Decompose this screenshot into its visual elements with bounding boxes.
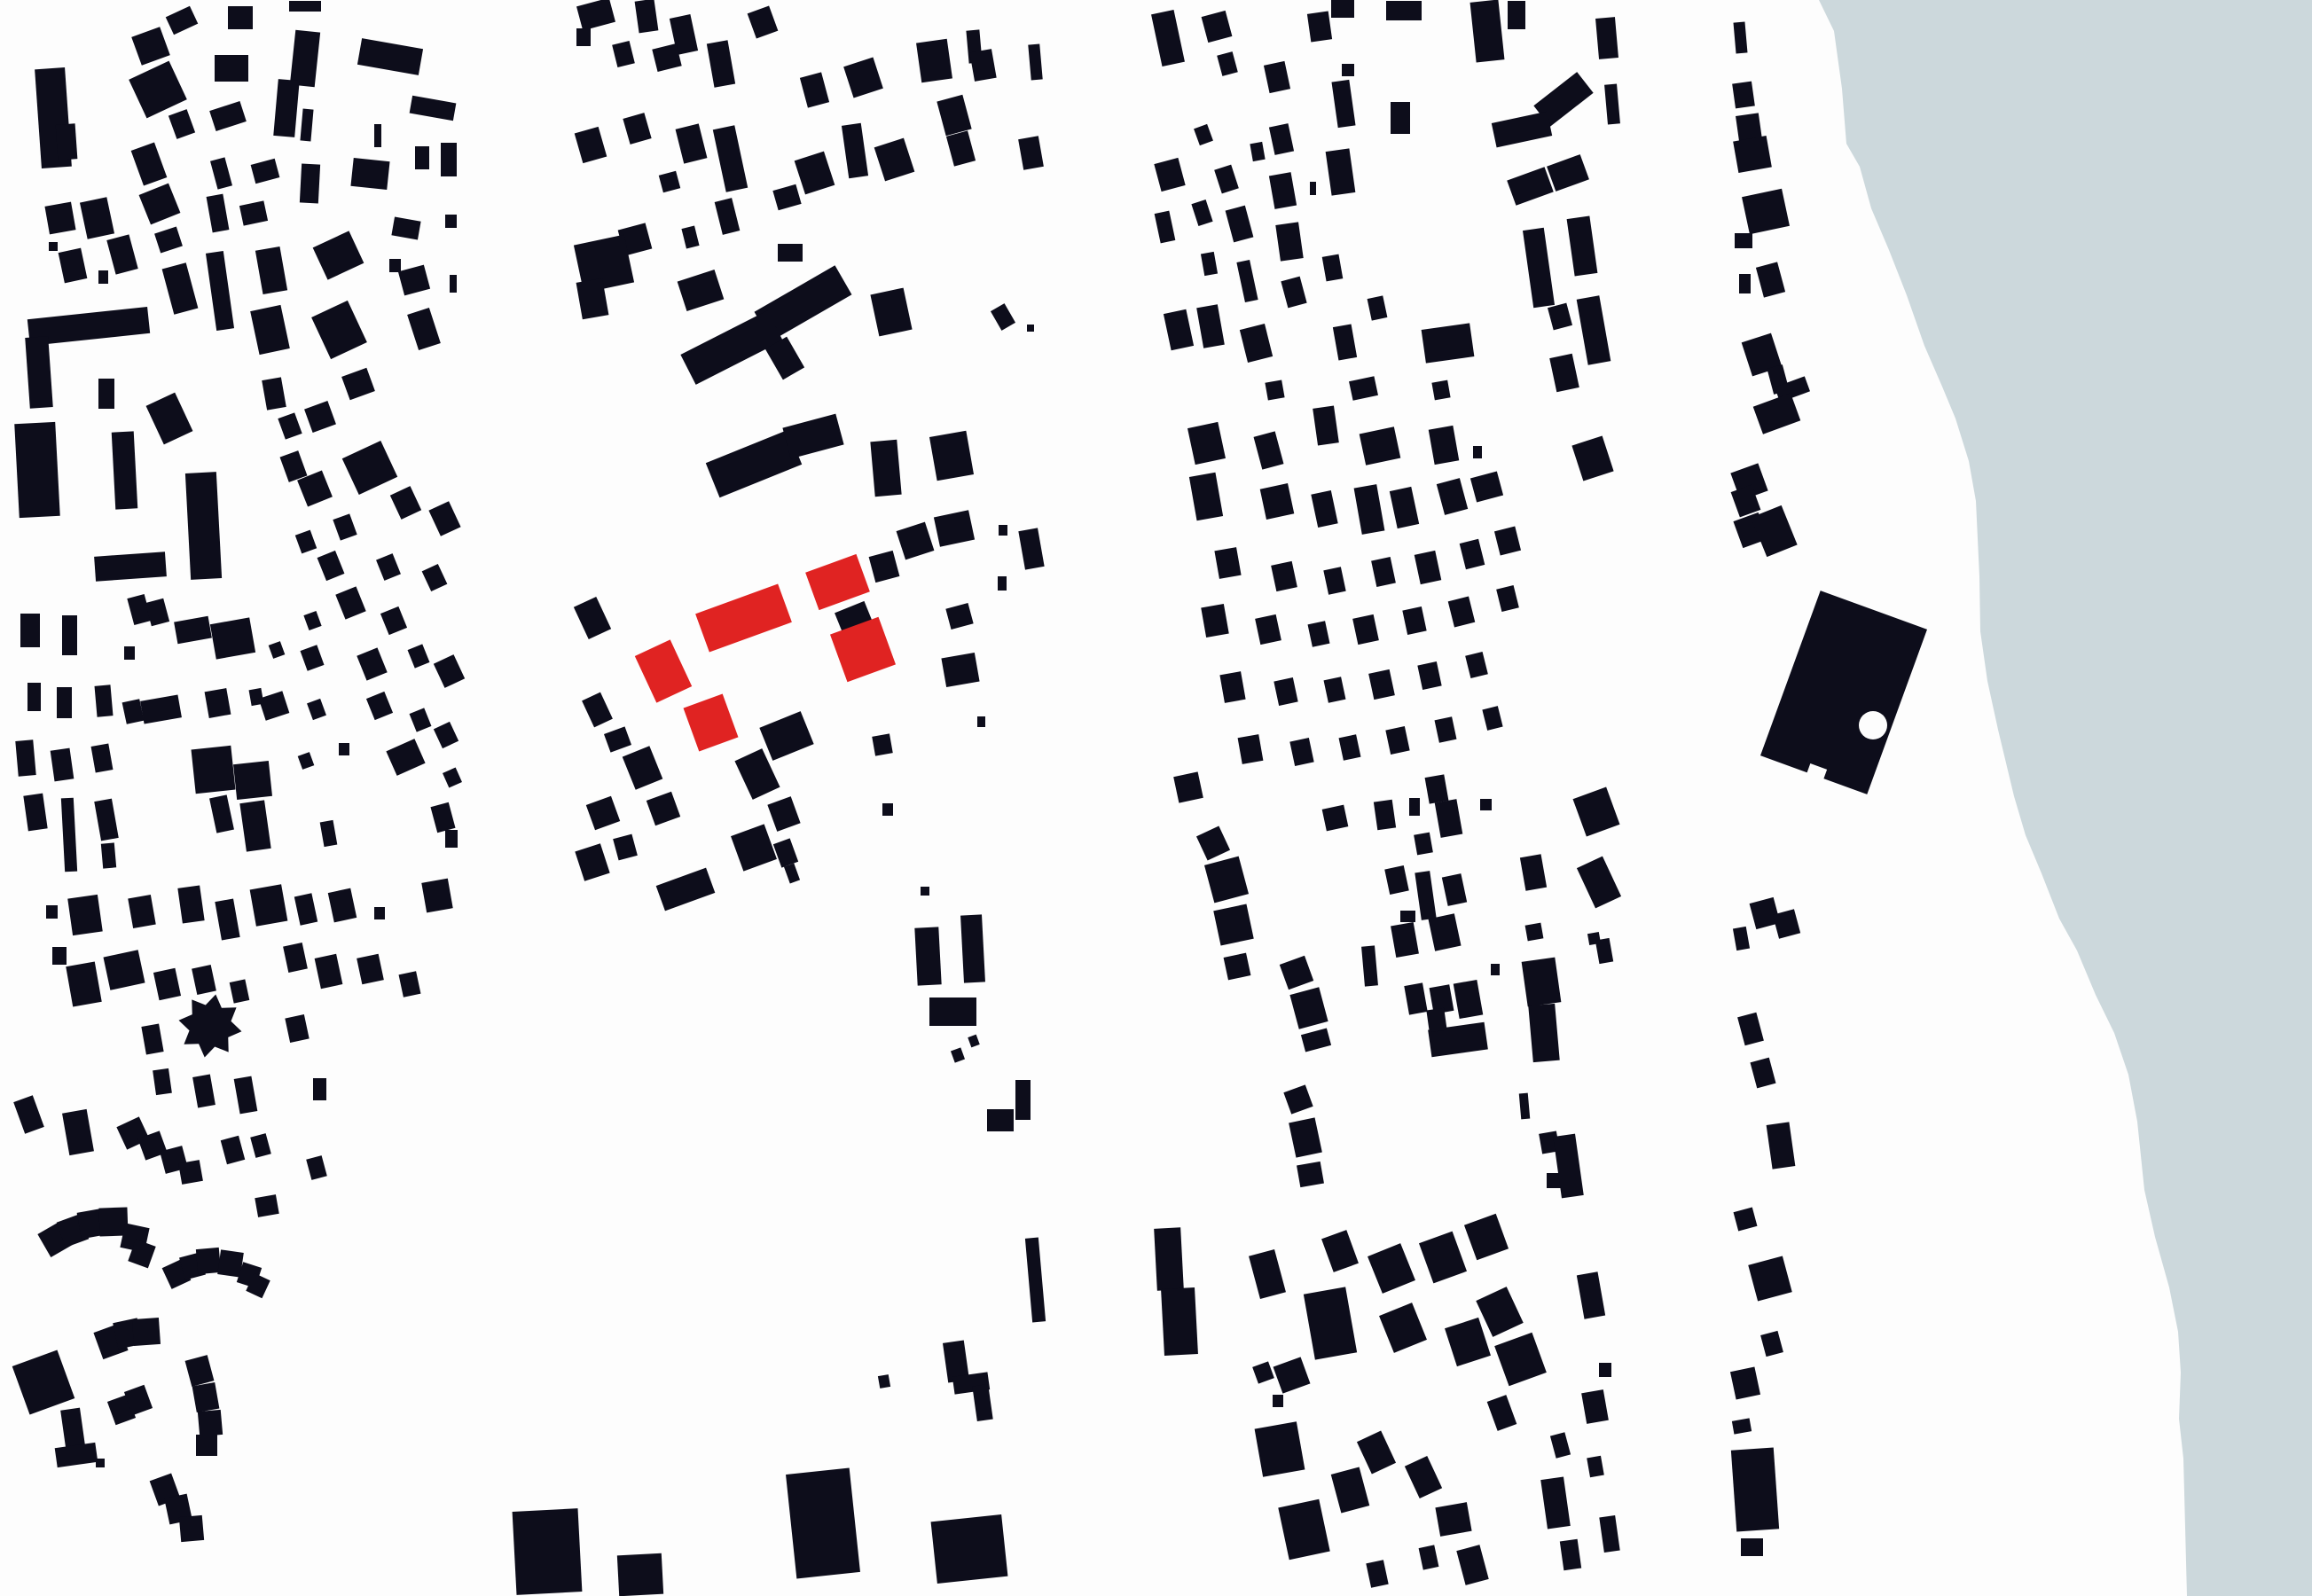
building-footprint <box>635 0 659 33</box>
building-footprint <box>1238 734 1264 764</box>
building-footprint <box>313 1078 326 1100</box>
building-footprint <box>1732 82 1755 109</box>
building-footprint <box>1154 1227 1184 1290</box>
building-footprint <box>778 244 803 262</box>
building-footprint <box>95 685 114 716</box>
building-footprint <box>1409 798 1420 816</box>
building-footprint <box>52 947 67 965</box>
building-footprint <box>1735 233 1752 248</box>
building-footprint <box>299 163 319 203</box>
building-footprint <box>132 1318 161 1346</box>
building-footprint <box>250 884 288 927</box>
building-footprint <box>1213 904 1253 945</box>
building-footprint <box>255 1194 278 1217</box>
building-footprint <box>20 614 40 647</box>
building-footprint <box>46 905 58 919</box>
building-footprint <box>617 1553 663 1596</box>
building-footprint <box>56 123 78 160</box>
building-footprint <box>1525 923 1544 942</box>
building-footprint <box>374 124 381 147</box>
building-footprint <box>878 1374 890 1389</box>
building-footprint <box>929 431 974 481</box>
building-footprint <box>192 1382 220 1412</box>
building-footprint <box>191 746 235 794</box>
building-footprint <box>391 216 420 239</box>
building-footprint <box>1421 323 1474 363</box>
building-footprint <box>228 6 253 29</box>
building-footprint <box>49 242 58 251</box>
building-footprint <box>1331 0 1354 18</box>
building-footprint <box>872 733 893 755</box>
building-footprint <box>27 683 41 711</box>
building-footprint <box>184 472 221 580</box>
building-footprint <box>1733 21 1747 53</box>
building-footprint <box>1027 325 1034 332</box>
building-footprint <box>209 617 255 659</box>
building-footprint <box>339 743 349 755</box>
building-footprint <box>1739 274 1751 293</box>
building-footprint <box>94 552 167 582</box>
building-footprint <box>96 1459 105 1467</box>
building-footprint <box>1491 964 1500 975</box>
building-footprint <box>1201 604 1229 638</box>
building-footprint <box>153 1068 172 1095</box>
building-footprint <box>1742 188 1790 234</box>
building-footprint <box>177 885 204 923</box>
building-footprint <box>1273 1395 1283 1407</box>
building-footprint <box>350 158 389 190</box>
building-footprint <box>103 950 145 990</box>
building-footprint <box>1321 804 1348 831</box>
building-footprint <box>1581 1389 1609 1424</box>
building-footprint <box>882 803 893 816</box>
building-footprint <box>374 907 385 919</box>
building-footprint <box>233 761 272 800</box>
building-footprint <box>1732 1418 1752 1434</box>
building-footprint <box>1028 44 1042 81</box>
building-footprint <box>1391 102 1410 134</box>
building-footprint <box>178 1160 203 1185</box>
building-footprint <box>960 914 985 982</box>
building-footprint <box>441 143 457 176</box>
building-footprint <box>1733 136 1772 173</box>
building-footprint <box>929 997 976 1026</box>
building-footprint <box>445 215 457 228</box>
building-footprint <box>62 615 77 655</box>
building-footprint <box>124 646 135 660</box>
building-footprint <box>450 275 457 293</box>
building-footprint <box>1224 953 1251 981</box>
building-notch <box>1859 711 1887 739</box>
building-footprint <box>941 652 979 686</box>
building-footprint <box>1599 1363 1611 1377</box>
building-footprint <box>1741 1538 1763 1556</box>
building-footprint <box>44 202 75 235</box>
building-footprint <box>14 422 59 518</box>
building-footprint <box>1400 911 1415 922</box>
figure-ground-map <box>0 0 2312 1596</box>
building-footprint <box>1161 1287 1198 1356</box>
building-footprint <box>998 576 1007 591</box>
building-footprint <box>1361 945 1378 986</box>
building-footprint <box>1214 547 1241 579</box>
building-footprint <box>987 1109 1014 1131</box>
building-footprint <box>215 55 248 82</box>
building-footprint <box>445 830 458 848</box>
building-footprint <box>513 1508 583 1595</box>
building-footprint <box>1528 1004 1559 1062</box>
building-footprint <box>421 879 452 913</box>
building-footprint <box>1255 1421 1305 1476</box>
building-footprint <box>870 440 901 497</box>
building-footprint <box>1435 1502 1471 1537</box>
building-footprint <box>198 1410 223 1436</box>
building-footprint <box>415 146 429 169</box>
building-footprint <box>1307 11 1332 42</box>
building-footprint <box>1373 800 1395 831</box>
building-footprint <box>389 259 401 272</box>
building-footprint <box>1473 446 1482 458</box>
building-footprint <box>128 895 156 928</box>
building-footprint <box>1342 64 1354 76</box>
building-footprint <box>977 716 985 727</box>
building-footprint <box>1386 1 1422 20</box>
building-footprint <box>1173 771 1203 802</box>
building-footprint <box>969 49 996 82</box>
building-footprint <box>786 1468 860 1579</box>
building-footprint <box>179 1515 204 1542</box>
building-footprint <box>289 1 321 12</box>
building-footprint <box>98 270 108 284</box>
building-footprint <box>204 688 231 718</box>
building-footprint <box>98 379 114 409</box>
building-footprint <box>25 336 53 409</box>
building-footprint <box>1431 380 1450 401</box>
building-footprint <box>1508 1 1525 29</box>
building-footprint <box>1731 1447 1779 1531</box>
building-footprint <box>914 927 941 985</box>
building-footprint <box>100 842 115 868</box>
building-footprint <box>1265 380 1284 401</box>
building-footprint <box>1414 832 1433 855</box>
building-footprint <box>1275 222 1303 261</box>
building-footprint <box>931 1514 1008 1584</box>
building-footprint <box>1426 1007 1446 1032</box>
building-footprint <box>1310 182 1316 195</box>
building-footprint <box>1522 957 1562 1006</box>
building-footprint <box>111 431 137 509</box>
building-footprint <box>15 739 35 777</box>
building-footprint <box>1015 1080 1031 1120</box>
building-footprint <box>1480 799 1492 810</box>
building-footprint <box>576 28 591 46</box>
building-footprint <box>999 525 1007 536</box>
building-footprint <box>1297 1161 1324 1186</box>
building-footprint <box>67 895 103 935</box>
building-footprint <box>1595 17 1618 59</box>
water-area <box>1819 0 2312 1596</box>
building-footprint <box>921 887 929 896</box>
building-footprint <box>57 687 72 718</box>
building-footprint <box>196 1435 217 1456</box>
building-footprint <box>916 38 952 82</box>
